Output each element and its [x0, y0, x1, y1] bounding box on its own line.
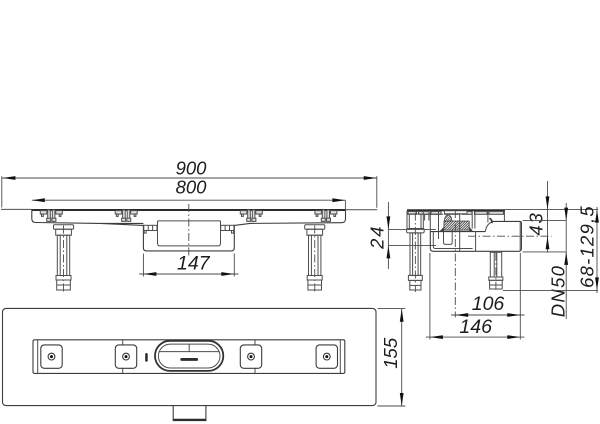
svg-text:43: 43	[525, 211, 546, 235]
svg-text:800: 800	[176, 176, 208, 197]
svg-text:106: 106	[472, 293, 505, 315]
svg-text:147: 147	[177, 252, 211, 274]
svg-text:146: 146	[459, 316, 492, 338]
svg-text:68-129,5: 68-129,5	[577, 205, 598, 288]
svg-text:900: 900	[176, 157, 208, 178]
svg-text:24: 24	[366, 225, 387, 250]
svg-text:DN50: DN50	[547, 265, 568, 318]
svg-text:155: 155	[380, 337, 401, 369]
